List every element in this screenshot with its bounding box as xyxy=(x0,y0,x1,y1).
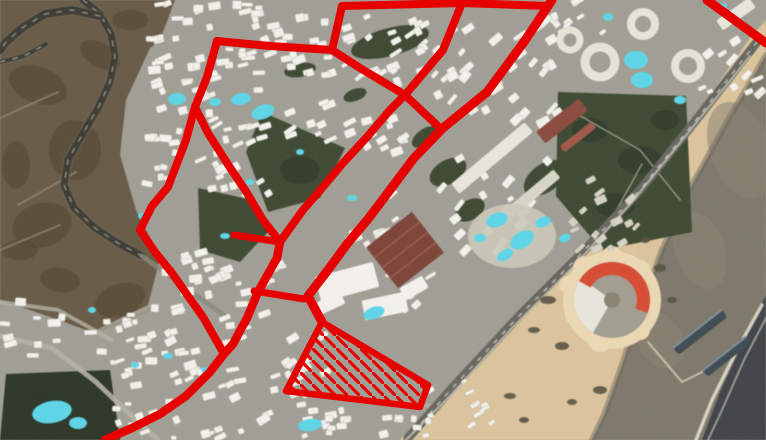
aerial-map-screenshot xyxy=(0,0,766,440)
highlighted-road-top-road xyxy=(342,3,548,6)
satellite-map-image xyxy=(0,0,766,440)
